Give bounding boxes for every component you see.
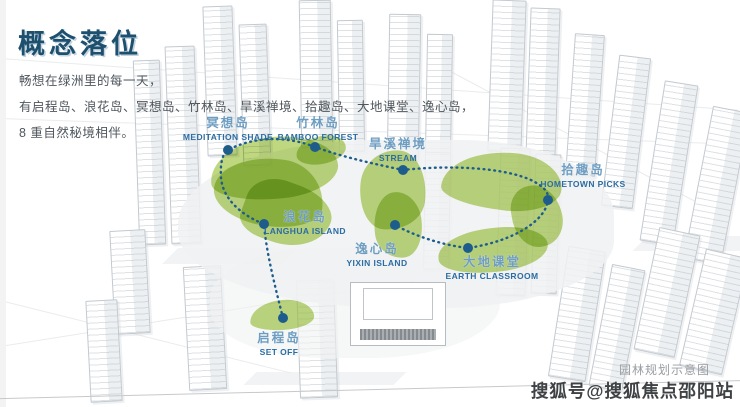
island-name-cn: 大地课堂 <box>446 251 539 270</box>
intro-line: 畅想在绿洲里的每一天， <box>19 68 474 94</box>
intro-line: 8 重自然秘境相伴。 <box>19 120 474 146</box>
island-name-en: YIXIN ISLAND <box>346 258 407 268</box>
island-route <box>0 0 740 407</box>
watermark-caption: 园林规划示意图 <box>531 361 710 378</box>
intro-paragraph: 畅想在绿洲里的每一天， 有启程岛、浪花岛、冥想岛、竹林岛、旱溪禅境、拾趣岛、大地… <box>19 68 474 146</box>
page-title: 概念落位 <box>18 22 142 61</box>
island-node <box>223 145 233 155</box>
island-node <box>543 195 553 205</box>
island-label-yixin: 逸心岛 YIXIN ISLAND <box>346 238 407 268</box>
island-label-hometown: 拾趣岛 HOMETOWN PICKS <box>540 159 625 189</box>
island-label-setoff: 启程岛 SET OFF <box>257 327 301 357</box>
intro-line: 有启程岛、浪花岛、冥想岛、竹林岛、旱溪禅境、拾趣岛、大地课堂、逸心岛， <box>19 94 474 120</box>
island-name-cn: 拾趣岛 <box>540 159 625 178</box>
island-label-earth: 大地课堂 EARTH CLASSROOM <box>446 251 539 281</box>
island-node <box>278 313 288 323</box>
island-name-cn: 启程岛 <box>257 327 301 346</box>
island-node <box>398 165 408 175</box>
island-name-en: LANGHUA ISLAND <box>264 226 346 236</box>
watermark-account: 搜狐号@搜狐焦点邵阳站 <box>531 378 734 403</box>
island-name-cn: 浪花岛 <box>264 206 346 225</box>
watermark: 园林规划示意图 搜狐号@搜狐焦点邵阳站 <box>531 361 734 403</box>
island-name-cn: 逸心岛 <box>346 238 407 257</box>
header: 概念落位 <box>18 22 142 61</box>
island-name-en: STREAM <box>369 153 427 163</box>
island-node <box>390 220 400 230</box>
island-label-langhua: 浪花岛 LANGHUA ISLAND <box>264 206 346 236</box>
island-name-en: SET OFF <box>257 347 301 357</box>
concept-plan-canvas: 冥想岛 MEDITATION SHADE 竹林岛 BAMBOO FOREST 旱… <box>0 0 740 407</box>
island-name-en: EARTH CLASSROOM <box>446 271 539 281</box>
island-name-en: HOMETOWN PICKS <box>540 179 625 189</box>
